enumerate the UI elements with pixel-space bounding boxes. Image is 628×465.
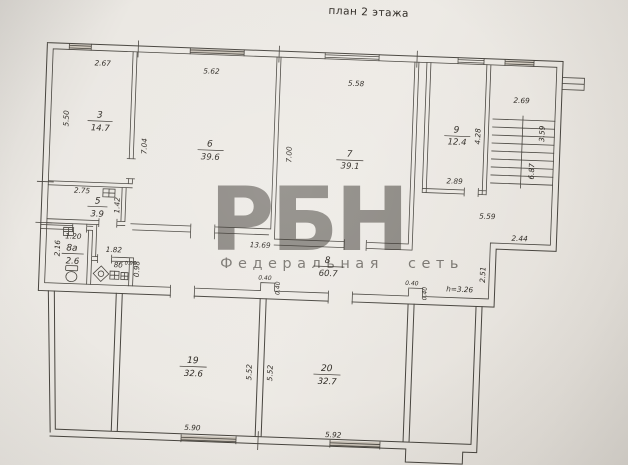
dim-room20-width: 5.92	[325, 430, 342, 440]
dim-stair-width: 2.69	[513, 96, 530, 106]
toilet-bowl-icon	[66, 271, 77, 281]
dim-stair-run2: 6.87	[527, 163, 537, 180]
room5-number: 5	[95, 196, 101, 206]
floorplan-canvas: план 2 этажа	[0, 0, 628, 465]
dim-room5-height: 1.42	[112, 197, 122, 214]
dim-room9-height: 4.28	[473, 128, 483, 145]
dim-stair-run1: 3.59	[537, 125, 547, 142]
sink-basin	[93, 266, 109, 282]
dim-room7-height: 7.00	[284, 146, 294, 163]
room3-area: 14.7	[91, 123, 111, 134]
room6-area: 39.6	[201, 152, 221, 163]
dim-room19-height: 5.52	[244, 364, 254, 381]
room3-number: 3	[97, 110, 103, 120]
dim-step-height: 2.51	[478, 266, 488, 283]
room20-area: 32.7	[318, 377, 338, 388]
room7-number: 7	[346, 150, 352, 160]
room6-number: 6	[207, 140, 213, 150]
dim-room7-width: 5.58	[348, 79, 365, 89]
page-title: план 2 этажа	[328, 5, 409, 20]
dim-room6-height: 7.04	[139, 138, 149, 155]
dim-notch2-height: 0.40	[421, 287, 428, 301]
lower-block-walls	[43, 291, 482, 465]
dim-hall-length: 5.59	[479, 212, 496, 222]
dim-room3-height: 5.50	[61, 110, 71, 127]
watermark-subtitle: Федеральная сеть	[220, 256, 464, 272]
dim-room5-width: 2.75	[74, 186, 91, 196]
dim-notch1-width: 0.40	[258, 274, 272, 281]
sink-drain-icon	[98, 271, 104, 277]
dim-notch2-width: 0.40	[405, 280, 419, 287]
room20-number: 20	[321, 364, 333, 374]
room19-area: 32.6	[184, 369, 204, 380]
dim-room8a-height: 2.16	[53, 239, 63, 256]
dim-notch1-height: 0.40	[274, 281, 281, 295]
dim-room19-width: 5.90	[184, 423, 201, 433]
room8a-area: 2.6	[65, 256, 79, 267]
room19-number: 19	[187, 356, 199, 366]
dim-room20-height: 5.52	[265, 364, 275, 381]
room9-area: 12.4	[447, 137, 466, 148]
dim-ceiling-height: h=3.26	[446, 284, 474, 294]
dim-room8b-small: 0.90	[124, 261, 136, 267]
scanned-floorplan-photo: план 2 этажа	[0, 0, 628, 465]
dim-room8b-width: 1.82	[106, 245, 123, 255]
room9-number: 9	[453, 126, 459, 136]
dim-step-width: 2.44	[511, 234, 528, 244]
room8a-number: 8а	[66, 243, 78, 253]
dim-room3-width: 2.67	[94, 58, 111, 68]
room5-area: 3.9	[90, 209, 104, 219]
room8b-number: 8б	[114, 260, 124, 269]
dim-room8a-width: 1.20	[65, 231, 82, 241]
watermark: РБН Федеральная сеть	[210, 168, 464, 272]
sink-icon	[93, 266, 109, 282]
dim-room6-width: 5.62	[203, 66, 220, 76]
dim-room9-width: 2.89	[446, 176, 463, 186]
